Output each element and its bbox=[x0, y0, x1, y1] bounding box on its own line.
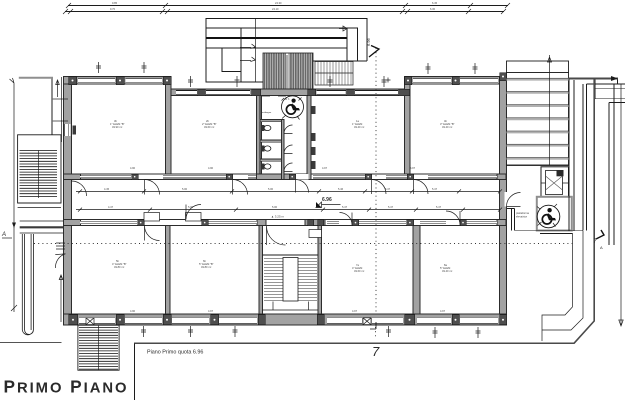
svg-text:4.90: 4.90 bbox=[208, 166, 214, 170]
svg-text:24.10: 24.10 bbox=[272, 7, 279, 11]
svg-text:Piano Primo quota 6.96: Piano Primo quota 6.96 bbox=[147, 350, 203, 356]
svg-text:24.30: 24.30 bbox=[275, 1, 282, 5]
svg-text:5.00: 5.00 bbox=[268, 187, 274, 191]
svg-text:5.47: 5.47 bbox=[388, 205, 394, 209]
svg-text:7: 7 bbox=[372, 344, 380, 359]
svg-text:5.46: 5.46 bbox=[338, 187, 344, 191]
svg-text:6.45: 6.45 bbox=[432, 1, 438, 5]
svg-text:4.45: 4.45 bbox=[104, 187, 110, 191]
svg-text:5.47: 5.47 bbox=[342, 205, 348, 209]
svg-text:▲ 3.25 m: ▲ 3.25 m bbox=[271, 215, 284, 219]
svg-text:49.90 m²: 49.90 m² bbox=[112, 125, 122, 129]
svg-text:A: A bbox=[1, 232, 6, 238]
svg-text:6.96: 6.96 bbox=[366, 37, 371, 46]
svg-text:5.47: 5.47 bbox=[436, 205, 442, 209]
svg-text:elevatrice: elevatrice bbox=[516, 215, 528, 219]
svg-text:4.90: 4.90 bbox=[130, 309, 136, 313]
svg-text:4.97: 4.97 bbox=[440, 309, 446, 313]
svg-text:49.40 m²: 49.40 m² bbox=[442, 125, 452, 129]
svg-text:piattaforma: piattaforma bbox=[516, 211, 530, 215]
svg-text:6.96: 6.96 bbox=[322, 197, 332, 203]
svg-text:4.97: 4.97 bbox=[352, 309, 358, 313]
svg-text:wc h: wc h bbox=[284, 97, 290, 101]
svg-text:9.70: 9.70 bbox=[110, 7, 116, 11]
svg-text:49.60 m²: 49.60 m² bbox=[204, 125, 214, 129]
svg-text:9.85: 9.85 bbox=[112, 1, 118, 5]
svg-text:6.30: 6.30 bbox=[430, 7, 436, 11]
svg-text:49.80 m²: 49.80 m² bbox=[201, 265, 211, 269]
svg-text:antibagno: antibagno bbox=[262, 111, 272, 114]
svg-text:49.40 m²: 49.40 m² bbox=[354, 125, 364, 129]
svg-text:49.40 m²: 49.40 m² bbox=[442, 269, 452, 273]
svg-text:PRIMO PIANO: PRIMO PIANO bbox=[4, 377, 129, 397]
svg-text:49.60 m²: 49.60 m² bbox=[354, 269, 364, 273]
svg-text:49.80 m²: 49.80 m² bbox=[114, 265, 124, 269]
svg-text:5.00: 5.00 bbox=[272, 205, 278, 209]
svg-text:A: A bbox=[600, 245, 603, 250]
svg-text:4.97: 4.97 bbox=[410, 166, 416, 170]
svg-text:5.47: 5.47 bbox=[432, 187, 438, 191]
svg-text:5.00: 5.00 bbox=[182, 187, 188, 191]
svg-text:4.47: 4.47 bbox=[108, 205, 114, 209]
svg-text:4.97: 4.97 bbox=[208, 309, 214, 313]
svg-text:4.90: 4.90 bbox=[130, 166, 136, 170]
svg-text:4.97: 4.97 bbox=[322, 166, 328, 170]
